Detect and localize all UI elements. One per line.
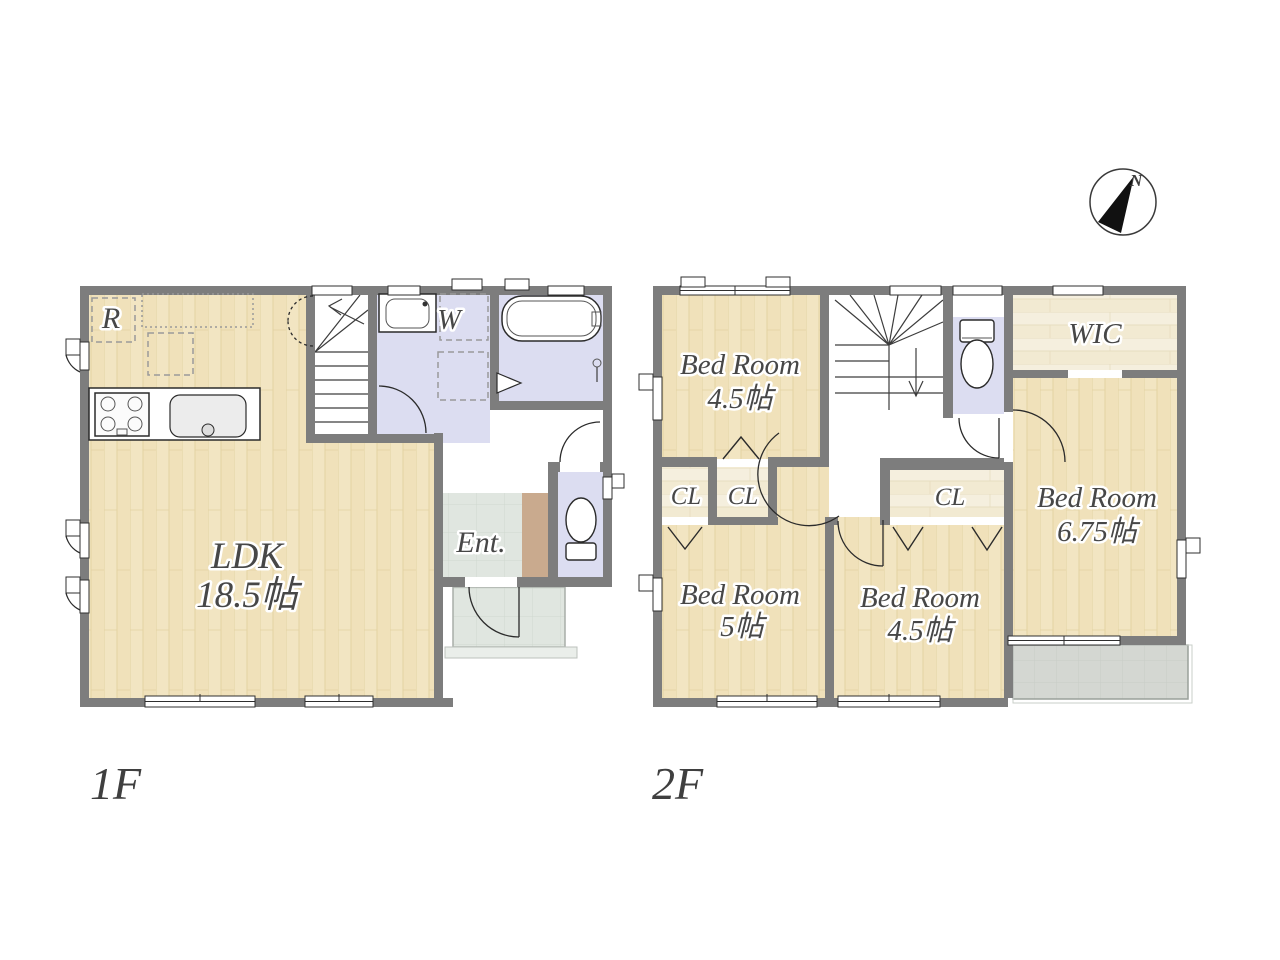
stairs-2f <box>835 295 943 410</box>
closet-left-label: CL <box>671 483 702 510</box>
bedroom-bottom-left-size: 5帖 <box>720 611 768 643</box>
closet-mid-label: CL <box>728 483 759 510</box>
stove-icon <box>95 393 149 436</box>
stairs-1f <box>315 295 368 434</box>
window-balcony-slider <box>1008 636 1120 645</box>
vanity-icon <box>379 294 436 332</box>
floor-plan-2f: Bed Room 4.5帖 WIC Bed Room 6.75帖 CL CL C… <box>639 277 1200 809</box>
floor-plan-1f: R W LDK 18.5帖 Ent. 1F <box>66 279 624 809</box>
ldk-size-label: 18.5帖 <box>196 575 303 616</box>
window-slider-1f-a <box>145 694 255 707</box>
window-slider-2f-b45 <box>838 694 940 707</box>
toilet-2f-cabinet <box>948 295 1004 317</box>
bedroom-bottom-center-label: Bed Room <box>860 582 980 614</box>
washroom-label: W <box>437 305 463 336</box>
compass-north-label: N <box>1129 171 1143 190</box>
entrance-label: Ent. <box>455 526 505 559</box>
bedroom-top-left-size: 4.5帖 <box>707 383 776 415</box>
bedroom-bottom-left-label: Bed Room <box>680 579 800 611</box>
closet-center-label: CL <box>935 484 966 511</box>
bedroom-right-size: 6.75帖 <box>1057 516 1141 548</box>
kitchen-counter <box>89 388 260 440</box>
ldk-label: LDK <box>210 536 285 577</box>
bathtub-icon <box>502 296 601 341</box>
entry-door-gap <box>465 577 517 587</box>
window-slider-1f-b <box>305 694 373 707</box>
floor-label-1f: 1F <box>90 758 142 809</box>
refrigerator-label: R <box>101 302 120 335</box>
toilet-icon-2f <box>960 320 994 388</box>
floor-plan-drawing: R W LDK 18.5帖 Ent. 1F <box>0 0 1280 960</box>
window-slider-2f-top <box>680 277 790 295</box>
toilet-icon-1f <box>566 498 596 560</box>
floor-label-2f: 2F <box>652 758 704 809</box>
window-slider-2f-b5 <box>717 694 817 707</box>
porch <box>445 587 577 658</box>
bedroom-right-label: Bed Room <box>1037 482 1157 514</box>
balcony <box>1013 645 1192 703</box>
sink-icon <box>170 395 246 437</box>
room-bedroom-top-left <box>662 295 820 467</box>
floor-plan-page: R W LDK 18.5帖 Ent. 1F <box>0 0 1280 960</box>
compass: N <box>1090 169 1156 235</box>
bedroom-top-left-label: Bed Room <box>680 349 800 381</box>
wic-label: WIC <box>1068 318 1122 350</box>
bedroom-bottom-center-size: 4.5帖 <box>887 615 956 647</box>
